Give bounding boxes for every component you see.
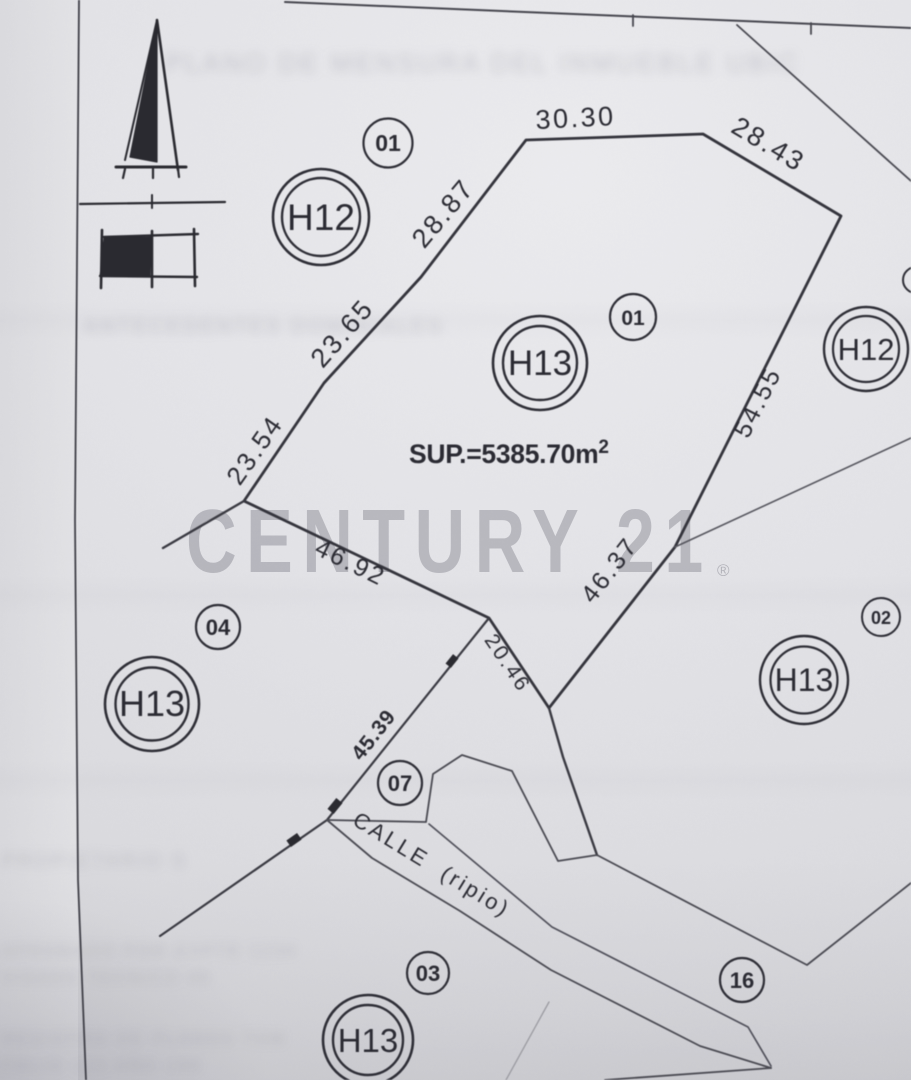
svg-text:H13: H13 [338, 1022, 399, 1059]
svg-text:45.39: 45.39 [347, 705, 401, 765]
svg-text:46.92: 46.92 [311, 534, 391, 592]
svg-text:SUP.=5385.70m2: SUP.=5385.70m2 [409, 437, 609, 469]
svg-text:07: 07 [388, 771, 412, 796]
svg-text:01: 01 [621, 307, 645, 330]
svg-text:04: 04 [206, 615, 231, 640]
svg-text:54.55: 54.55 [728, 363, 787, 443]
svg-text:16: 16 [730, 968, 754, 993]
svg-text:H13: H13 [119, 683, 185, 724]
svg-text:H12: H12 [838, 332, 895, 367]
svg-text:01: 01 [375, 130, 401, 156]
svg-text:03: 03 [416, 961, 440, 986]
svg-text:CALLE (ripio): CALLE (ripio) [349, 807, 516, 922]
svg-text:20.46: 20.46 [480, 630, 535, 697]
svg-text:H13: H13 [775, 662, 834, 698]
svg-text:46.37: 46.37 [576, 532, 644, 608]
svg-text:30.30: 30.30 [535, 101, 617, 135]
svg-text:28.43: 28.43 [727, 111, 811, 178]
svg-text:H12: H12 [287, 197, 355, 238]
svg-text:02: 02 [871, 608, 891, 628]
svg-text:H13: H13 [508, 344, 572, 383]
